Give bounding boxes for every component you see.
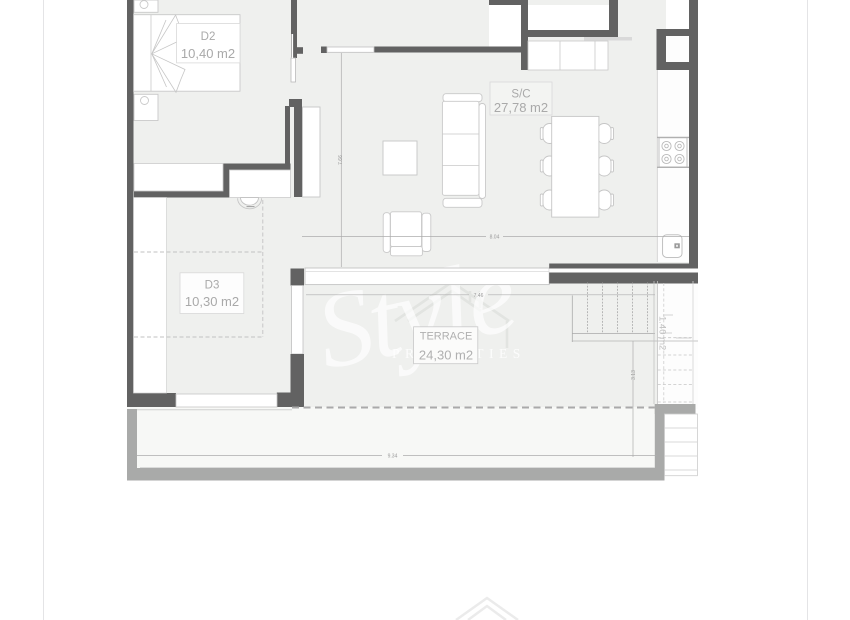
svg-text:3.13: 3.13 xyxy=(631,370,637,380)
svg-text:D2: D2 xyxy=(201,31,216,43)
svg-text:7.66: 7.66 xyxy=(338,155,344,165)
svg-text:24,30 m2: 24,30 m2 xyxy=(419,348,473,363)
svg-text:10,30 m2: 10,30 m2 xyxy=(185,294,239,309)
svg-text:27,78 m2: 27,78 m2 xyxy=(494,100,548,115)
svg-text:8.04: 8.04 xyxy=(490,235,500,241)
svg-text:S/C: S/C xyxy=(511,89,530,101)
svg-text:9.34: 9.34 xyxy=(388,454,398,460)
svg-text:1.40 m2: 1.40 m2 xyxy=(657,316,668,350)
svg-text:D3: D3 xyxy=(205,280,220,292)
svg-text:7.46: 7.46 xyxy=(474,293,484,299)
svg-text:TERRACE: TERRACE xyxy=(420,331,473,343)
svg-text:10,40 m2: 10,40 m2 xyxy=(181,46,235,61)
